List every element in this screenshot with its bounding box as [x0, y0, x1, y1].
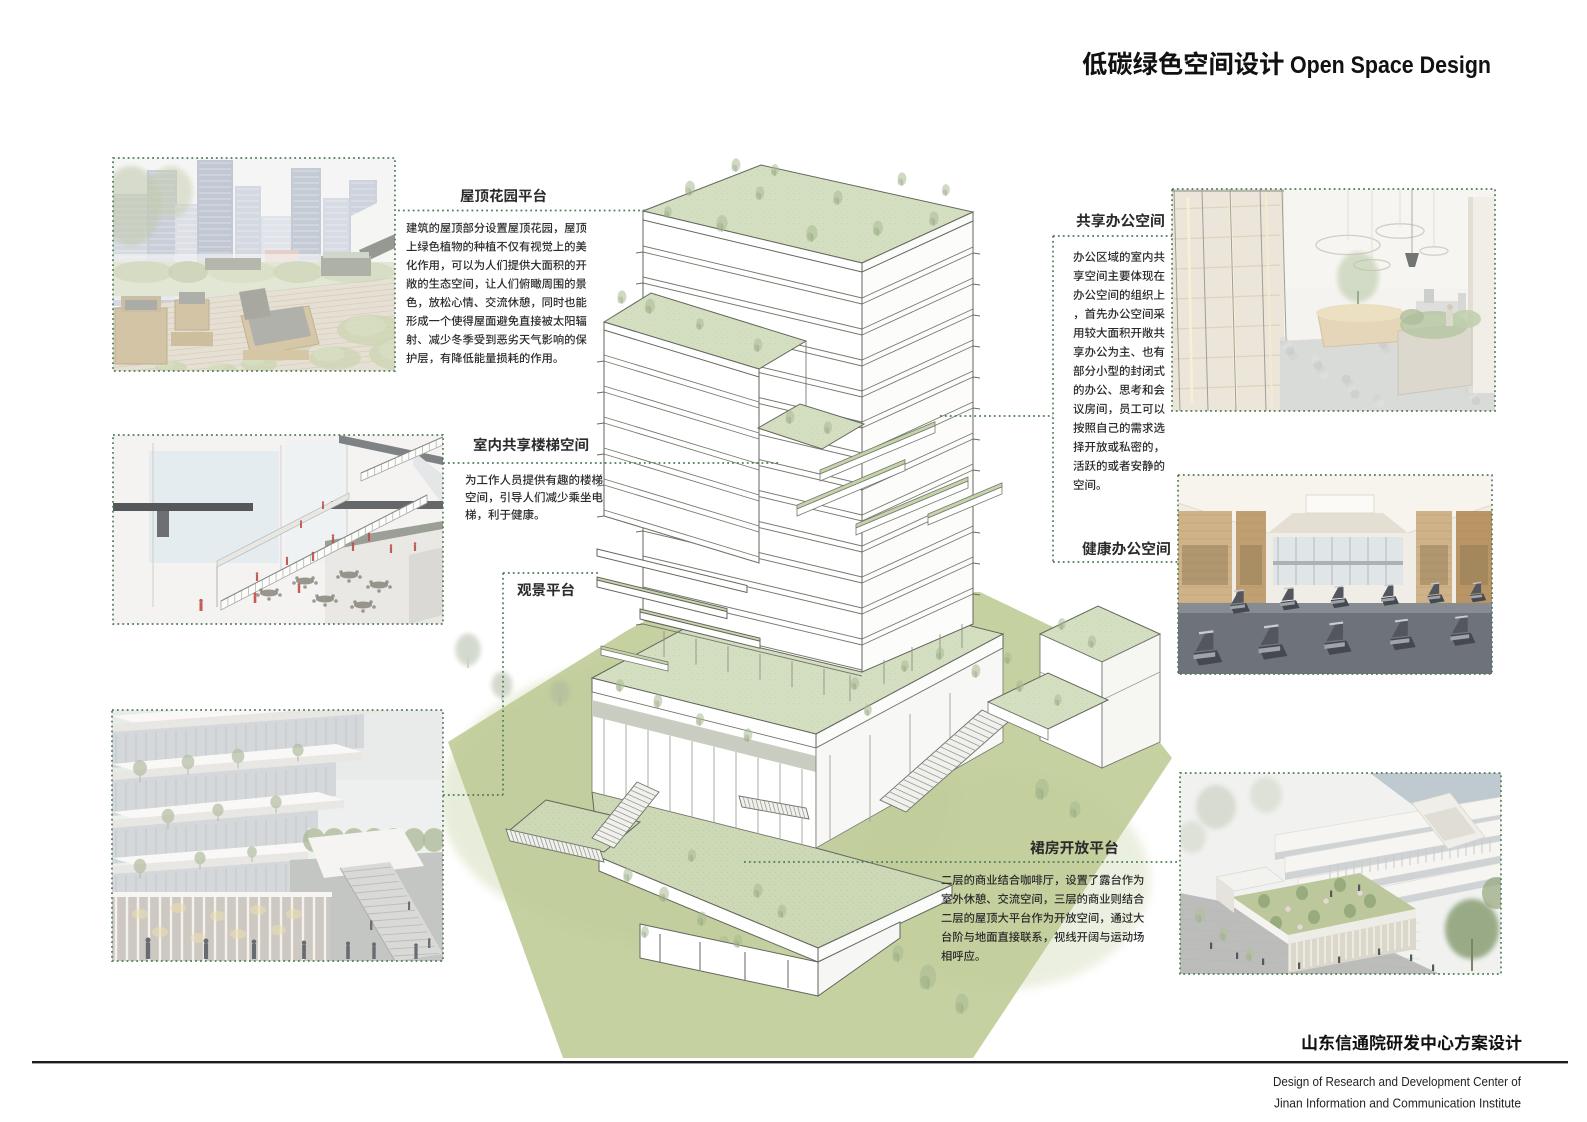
svg-text:Jinan Information and Communic: Jinan Information and Communication Inst… — [1274, 1096, 1521, 1111]
svg-text:Design of Research and Develop: Design of Research and Development Cente… — [1273, 1074, 1521, 1089]
svg-text:Open Space Design: Open Space Design — [1290, 52, 1491, 79]
